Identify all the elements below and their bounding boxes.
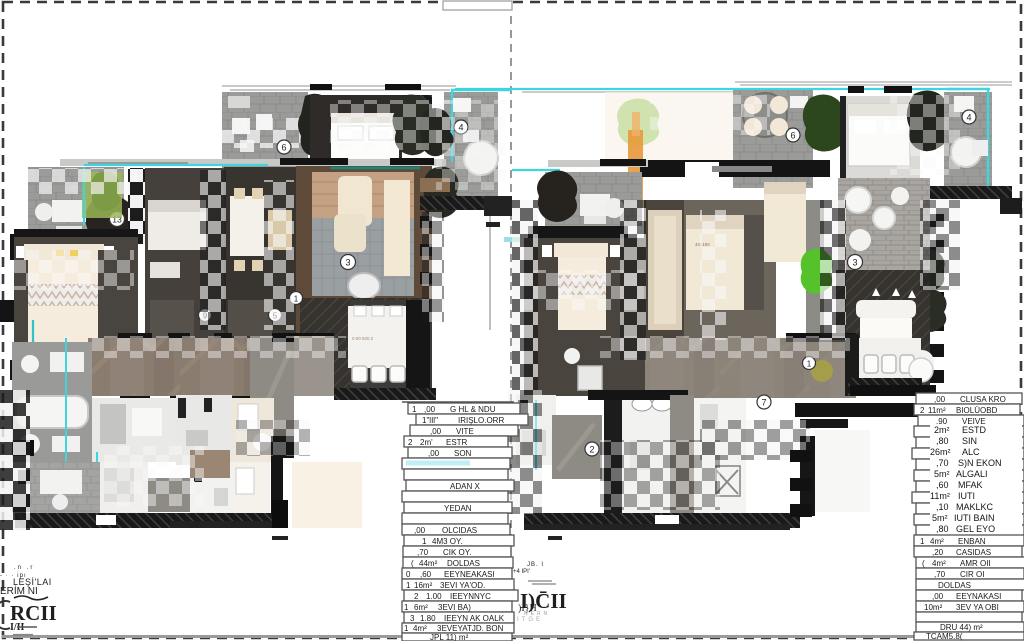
svg-text:CLUSA KRO: CLUSA KRO bbox=[960, 395, 1006, 404]
svg-text:,60: ,60 bbox=[936, 480, 949, 490]
svg-text:11m²: 11m² bbox=[930, 491, 950, 501]
svg-text:EEYNEAKASI: EEYNEAKASI bbox=[444, 570, 495, 579]
svg-text:ITGE: ITGE bbox=[517, 617, 543, 623]
svg-text:,00: ,00 bbox=[414, 526, 426, 535]
svg-text:MFAK: MFAK bbox=[958, 480, 983, 490]
svg-text:,10: ,10 bbox=[936, 502, 949, 512]
svg-text:TCAM5.8(: TCAM5.8( bbox=[926, 632, 963, 641]
svg-text:ENBAN: ENBAN bbox=[958, 537, 986, 546]
svg-text:ALGALI: ALGALI bbox=[956, 469, 988, 479]
svg-text:.n .r: .n .r bbox=[14, 565, 34, 571]
svg-text:1: 1 bbox=[422, 537, 427, 546]
svg-text:VITE: VITE bbox=[456, 427, 474, 436]
svg-text:(: ( bbox=[411, 559, 414, 568]
svg-text:5m²: 5m² bbox=[934, 469, 950, 479]
svg-text:1: 1 bbox=[294, 295, 299, 304]
svg-text:7: 7 bbox=[761, 398, 766, 408]
svg-text:0: 0 bbox=[406, 570, 411, 579]
svg-text:1.80: 1.80 bbox=[420, 614, 436, 623]
svg-text:,00: ,00 bbox=[424, 405, 436, 414]
svg-text:,20: ,20 bbox=[932, 548, 944, 557]
svg-text:4M3 OY.: 4M3 OY. bbox=[432, 537, 463, 546]
svg-text:26m²: 26m² bbox=[930, 447, 951, 457]
svg-text:AMR OII: AMR OII bbox=[960, 559, 991, 568]
svg-text:,70: ,70 bbox=[934, 570, 946, 579]
svg-text:16m²: 16m² bbox=[414, 581, 433, 590]
svg-text:MAKLKC: MAKLKC bbox=[956, 502, 994, 512]
svg-text:4m²: 4m² bbox=[413, 624, 427, 633]
svg-text:IEEYNNYC: IEEYNNYC bbox=[450, 592, 491, 601]
svg-text:+4 IPI': +4 IPI' bbox=[513, 569, 530, 575]
svg-text:CASIDAS: CASIDAS bbox=[956, 548, 991, 557]
svg-text:OLCIDAS: OLCIDAS bbox=[442, 526, 477, 535]
svg-text:0.00 500.2: 0.00 500.2 bbox=[352, 336, 374, 341]
svg-text:YEDAN: YEDAN bbox=[444, 504, 472, 513]
svg-text:2: 2 bbox=[920, 406, 925, 415]
svg-text:ALC: ALC bbox=[962, 447, 980, 457]
svg-text:3EVI YA'OD.: 3EVI YA'OD. bbox=[440, 581, 485, 590]
svg-text:JB. I: JB. I bbox=[527, 562, 544, 568]
svg-text:2: 2 bbox=[589, 445, 594, 455]
svg-text:ERIM NI: ERIM NI bbox=[0, 586, 38, 597]
svg-text:1.00: 1.00 bbox=[426, 592, 442, 601]
svg-text:1: 1 bbox=[404, 624, 409, 633]
svg-text:4m²: 4m² bbox=[932, 559, 946, 568]
svg-text:JPL 11) m²: JPL 11) m² bbox=[430, 633, 469, 641]
svg-text:SIN: SIN bbox=[962, 436, 977, 446]
svg-text:1: 1 bbox=[920, 537, 925, 546]
svg-text:2m': 2m' bbox=[420, 438, 433, 447]
svg-text:2: 2 bbox=[408, 438, 413, 447]
svg-text:,60: ,60 bbox=[420, 570, 432, 579]
svg-text:ADAN X: ADAN X bbox=[450, 482, 480, 491]
svg-text:6: 6 bbox=[790, 131, 795, 141]
svg-text:2: 2 bbox=[414, 592, 419, 601]
svg-text:44m²: 44m² bbox=[419, 559, 438, 568]
svg-text:4: 4 bbox=[966, 113, 971, 123]
svg-text:,70: ,70 bbox=[936, 458, 949, 468]
svg-text:,80: ,80 bbox=[936, 524, 949, 534]
svg-text:3: 3 bbox=[345, 258, 350, 268]
svg-text:1: 1 bbox=[404, 603, 409, 612]
svg-text:ESTD: ESTD bbox=[962, 425, 987, 435]
svg-text:3: 3 bbox=[410, 614, 415, 623]
svg-text:GEL EYO: GEL EYO bbox=[956, 524, 995, 534]
svg-text:1: 1 bbox=[412, 405, 417, 414]
svg-text:(: ( bbox=[922, 559, 925, 568]
svg-text:BIOLÜOBD: BIOLÜOBD bbox=[956, 406, 998, 415]
svg-text:S)N EKON: S)N EKON bbox=[958, 458, 1002, 468]
svg-text:4m²: 4m² bbox=[930, 537, 944, 546]
svg-text:11m²: 11m² bbox=[928, 406, 946, 415]
svg-text:EEYNAKASI: EEYNAKASI bbox=[956, 592, 1001, 601]
svg-text:,00: ,00 bbox=[428, 449, 440, 458]
svg-text:DRU 44) m²: DRU 44) m² bbox=[940, 623, 983, 632]
svg-text:,00: ,00 bbox=[932, 592, 944, 601]
svg-text:1: 1 bbox=[406, 581, 411, 590]
svg-text:IUTI: IUTI bbox=[958, 491, 975, 501]
svg-text:CIR OI: CIR OI bbox=[960, 570, 984, 579]
svg-text:3EVI BA): 3EVI BA) bbox=[438, 603, 471, 612]
svg-text:6m²: 6m² bbox=[414, 603, 428, 612]
svg-text:10m²: 10m² bbox=[924, 603, 943, 612]
svg-text:IRIŞLO.ORR: IRIŞLO.ORR bbox=[458, 416, 504, 425]
svg-text:1"lIl": 1"lIl" bbox=[422, 416, 438, 425]
svg-text:2m²: 2m² bbox=[934, 425, 950, 435]
svg-text:3: 3 bbox=[852, 258, 857, 268]
svg-text:6: 6 bbox=[281, 143, 286, 153]
svg-text:,00: ,00 bbox=[430, 427, 442, 436]
svg-text:DOLDAS: DOLDAS bbox=[938, 581, 971, 590]
svg-text:,70: ,70 bbox=[417, 548, 429, 557]
svg-text:CIK OY.: CIK OY. bbox=[443, 548, 471, 557]
svg-text:3EVEYATJD. BON: 3EVEYATJD. BON bbox=[437, 624, 504, 633]
svg-text:5m²: 5m² bbox=[932, 513, 948, 523]
svg-text:3EV YA OBI: 3EV YA OBI bbox=[956, 603, 999, 612]
svg-text:1: 1 bbox=[807, 360, 812, 369]
svg-text:SON: SON bbox=[454, 449, 472, 458]
svg-text:IEEYN AK OALK: IEEYN AK OALK bbox=[444, 614, 505, 623]
svg-text:,00: ,00 bbox=[934, 395, 946, 404]
svg-text:,80: ,80 bbox=[936, 436, 949, 446]
svg-text:ESTR: ESTR bbox=[446, 438, 468, 447]
svg-text:IUTI BAIN: IUTI BAIN bbox=[954, 513, 995, 523]
svg-text:G HL & NDU: G HL & NDU bbox=[450, 405, 496, 414]
svg-text:DOLDAS: DOLDAS bbox=[447, 559, 480, 568]
